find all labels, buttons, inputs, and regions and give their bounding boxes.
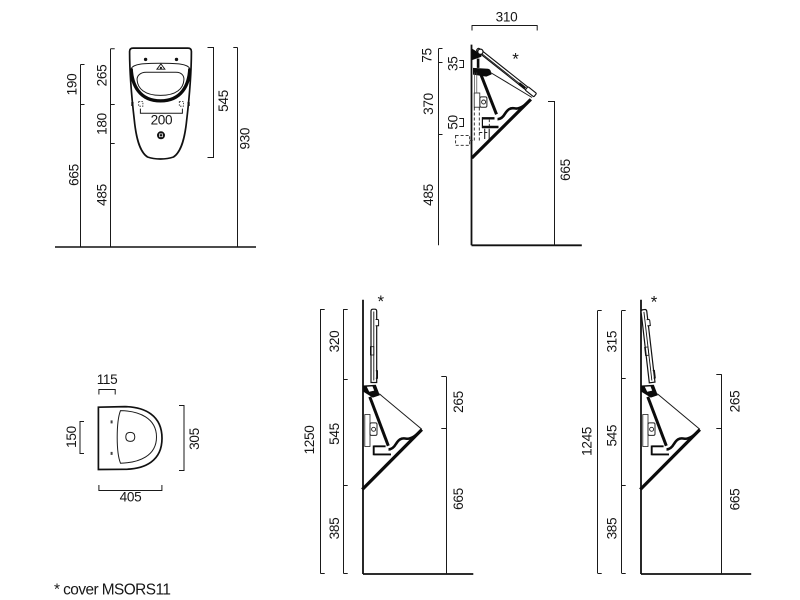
svg-text:1250: 1250 (302, 425, 317, 455)
svg-text:115: 115 (97, 372, 118, 387)
svg-text:1245: 1245 (580, 427, 595, 456)
svg-text:665: 665 (67, 164, 82, 186)
svg-text:200: 200 (151, 113, 173, 128)
svg-text:385: 385 (605, 518, 620, 540)
svg-text:385: 385 (327, 518, 342, 540)
svg-text:50: 50 (446, 114, 461, 129)
svg-text:545: 545 (605, 425, 620, 447)
svg-text:*: * (512, 50, 519, 69)
svg-text:930: 930 (238, 127, 253, 149)
svg-text:370: 370 (421, 92, 436, 114)
svg-text:315: 315 (605, 331, 620, 353)
svg-text:* cover MSORS11: * cover MSORS11 (54, 582, 170, 599)
svg-text:305: 305 (187, 428, 202, 450)
svg-text:265: 265 (728, 391, 743, 413)
svg-text:265: 265 (451, 391, 466, 413)
svg-text:665: 665 (558, 159, 573, 181)
svg-text:405: 405 (120, 490, 142, 505)
svg-text:75: 75 (420, 48, 435, 62)
svg-text:265: 265 (95, 65, 110, 87)
svg-text:320: 320 (327, 330, 342, 352)
svg-text:35: 35 (446, 57, 461, 71)
svg-text:*: * (377, 292, 384, 311)
svg-text:545: 545 (216, 90, 231, 112)
svg-text:310: 310 (496, 10, 518, 25)
svg-text:665: 665 (728, 489, 743, 511)
svg-text:545: 545 (327, 423, 342, 445)
svg-text:485: 485 (95, 184, 110, 206)
svg-text:485: 485 (421, 184, 436, 206)
svg-text:180: 180 (95, 112, 110, 134)
svg-text:665: 665 (451, 488, 466, 510)
svg-text:*: * (651, 293, 658, 312)
svg-text:150: 150 (64, 425, 79, 447)
svg-text:190: 190 (65, 73, 80, 95)
